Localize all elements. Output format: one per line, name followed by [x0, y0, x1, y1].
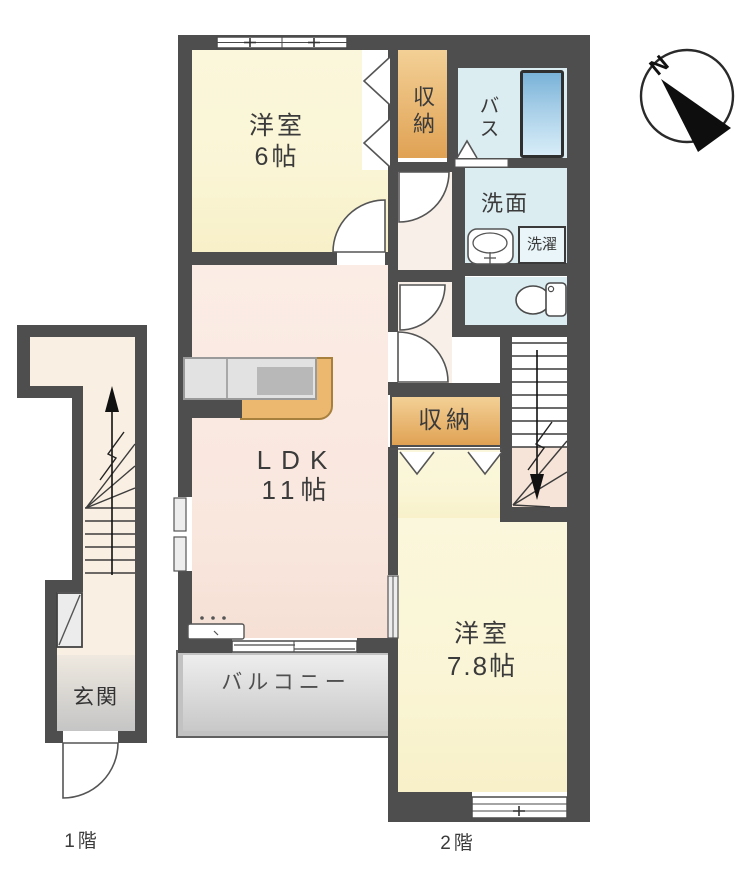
floor2-caption: 2階: [428, 833, 488, 855]
ldk-name-label: LDK: [227, 446, 367, 476]
floor-plan: 洗濯: [0, 0, 754, 894]
entrance-label: 玄関: [60, 686, 132, 710]
stair-hall-1f: [83, 386, 135, 592]
floor1-caption: 1階: [52, 831, 112, 853]
window-ldk-left: [174, 498, 186, 571]
stairwell-2f-winder: [512, 447, 567, 507]
stair-hall-1f-top: [30, 337, 135, 386]
balcony-label: バルコニー: [196, 671, 376, 695]
door-arc-entrance: [63, 743, 118, 798]
compass-north-label: N: [639, 45, 679, 85]
closet-top-label: 収納: [409, 64, 435, 160]
bedroom6-size-label: 6帖: [207, 143, 347, 172]
bedroom78-name-label: 洋室: [412, 620, 552, 649]
toilet-room: [465, 277, 567, 325]
washroom-label: 洗面: [455, 191, 555, 216]
bathtub-icon: [520, 70, 564, 158]
bedroom6-name-label: 洋室: [207, 112, 347, 141]
closet-mid-label: 収納: [390, 407, 502, 435]
entrance-hall-1f: [57, 592, 135, 655]
bedroom-78-room-upper: [398, 450, 500, 522]
window-bedroom78-left: [388, 576, 398, 638]
stairwell-2f: [512, 337, 567, 447]
kitchen-sink-top: [257, 367, 313, 395]
washing-machine-box: 洗濯: [518, 226, 566, 264]
laundry-label: 洗濯: [527, 236, 557, 253]
ldk-size-label: 11帖: [227, 476, 367, 506]
bedroom-6-closet-door-strip: [362, 50, 388, 170]
window-bottom: [472, 797, 567, 822]
bedroom78-size-label: 7.8帖: [402, 652, 562, 682]
bath-label: バス: [472, 88, 498, 148]
